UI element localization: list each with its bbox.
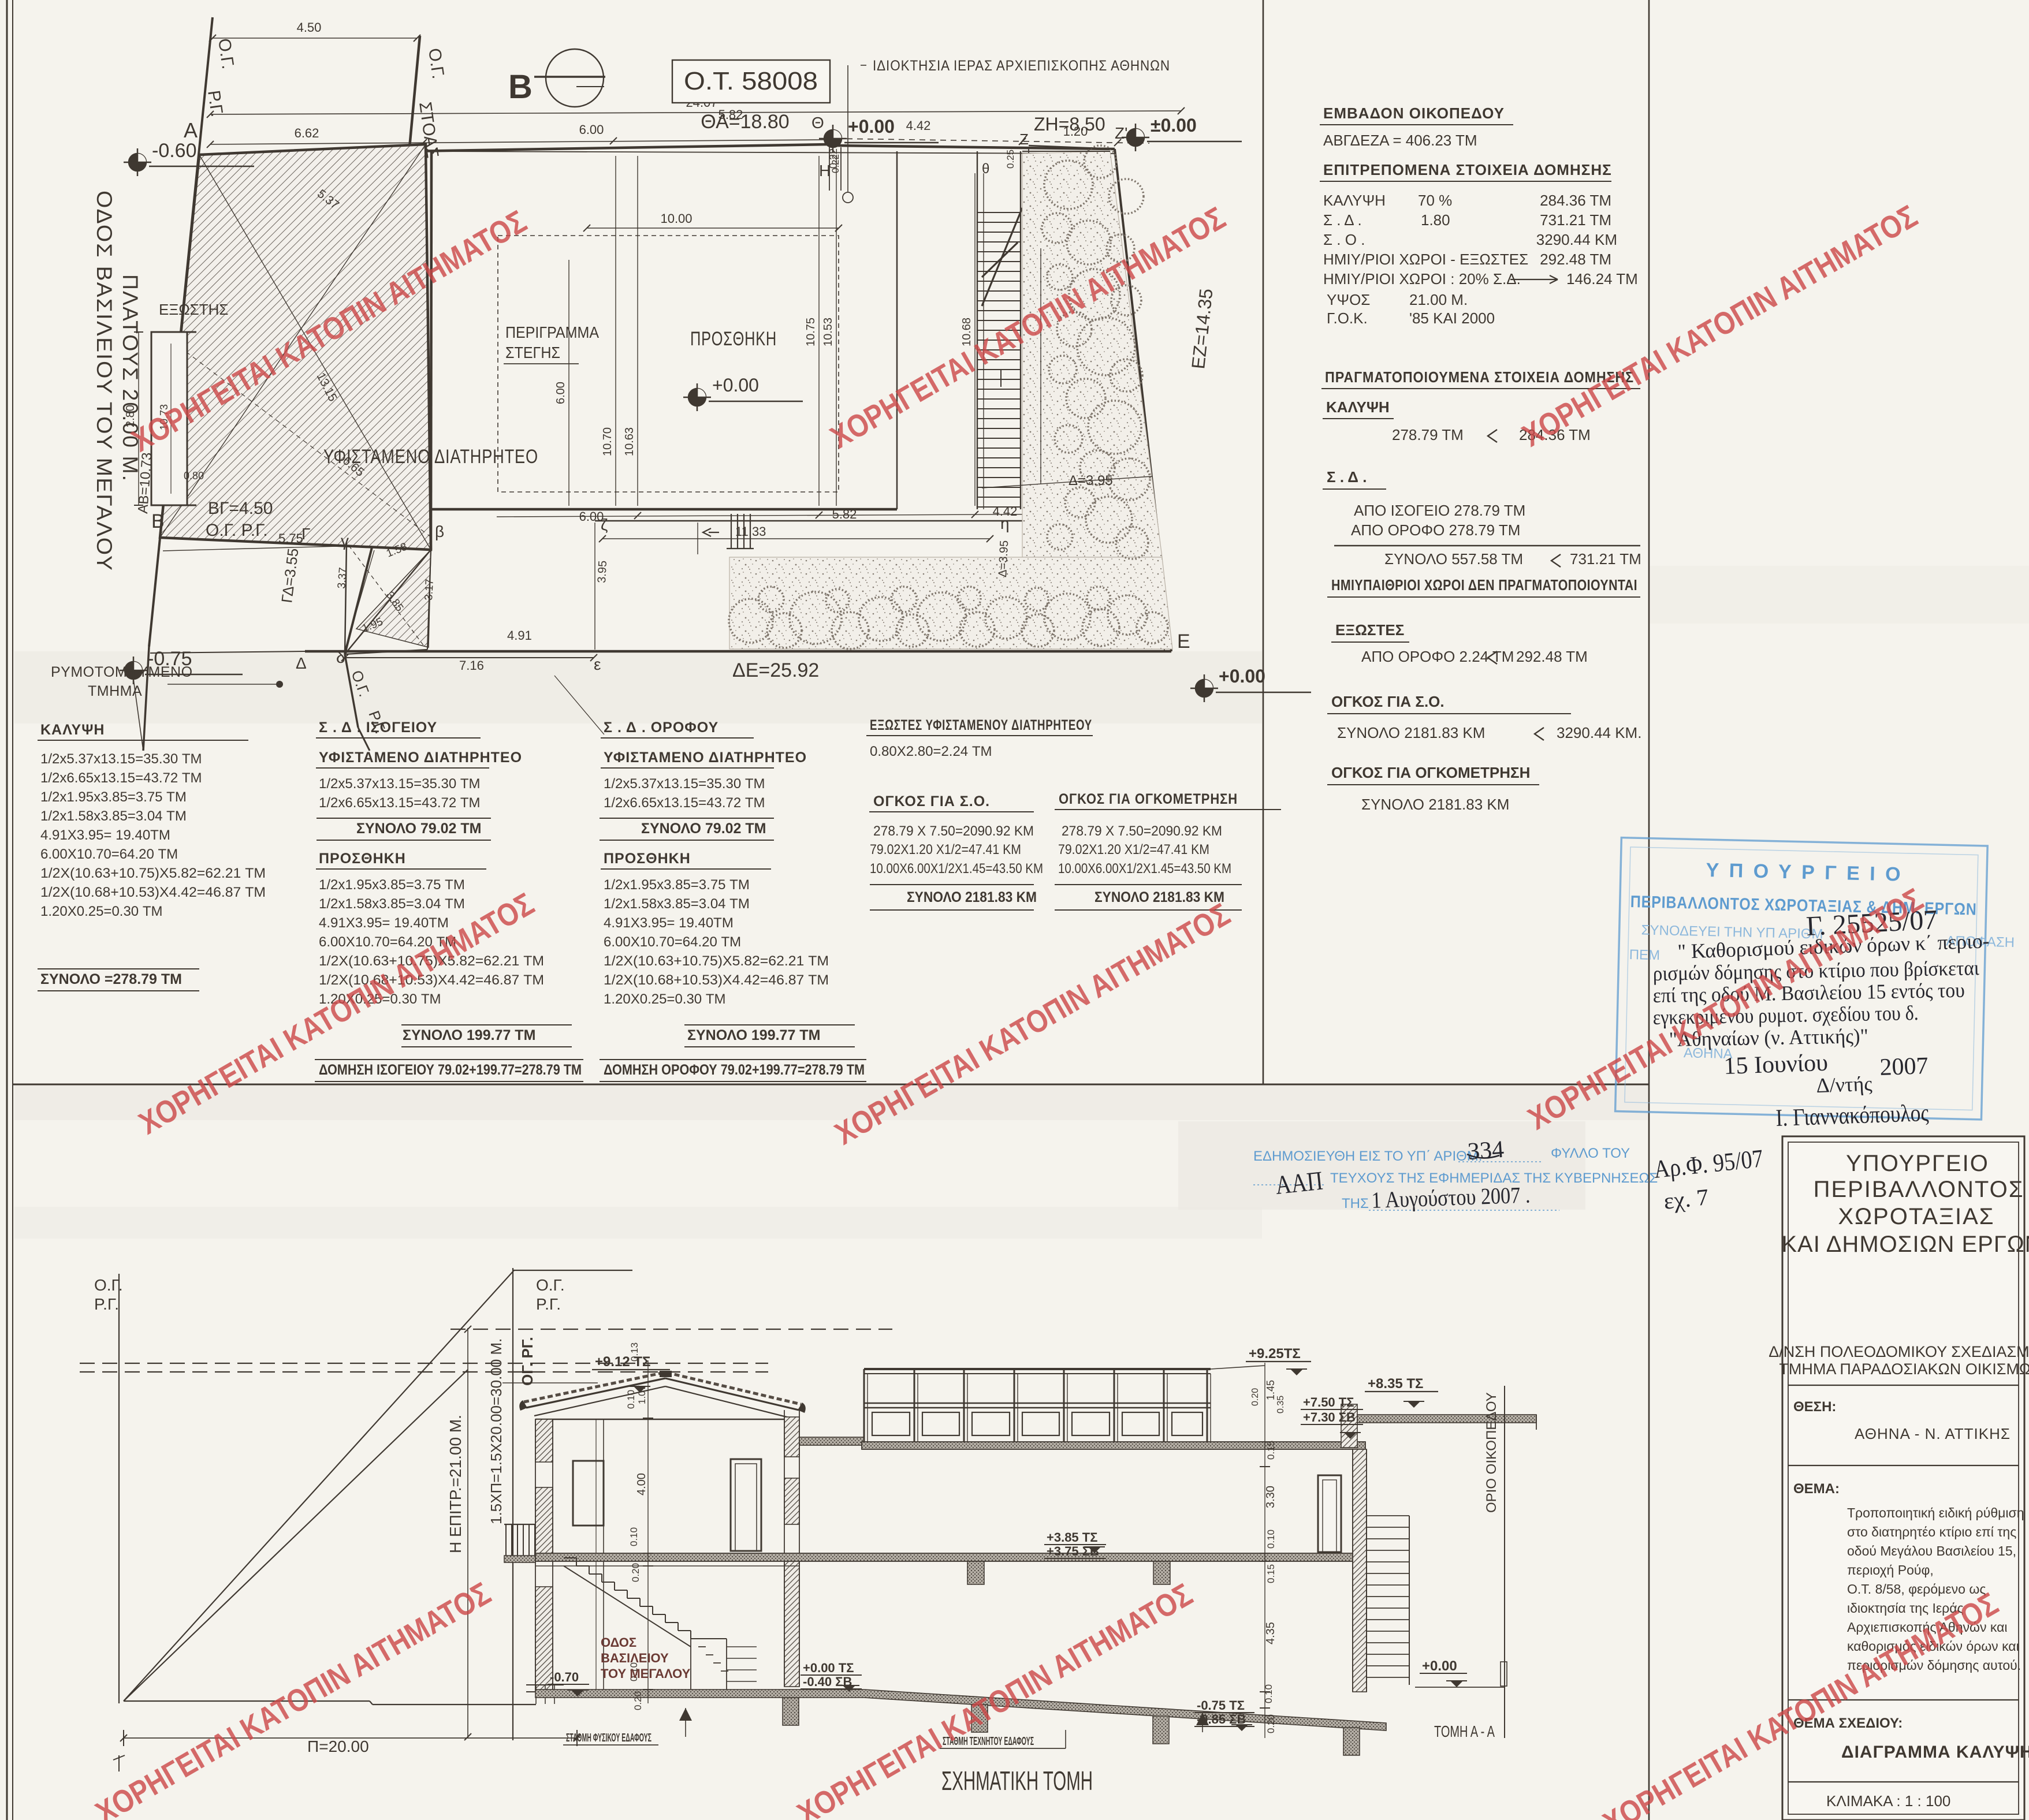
svg-text:ΠΕΡΙΓΡΑΜΜΑ: ΠΕΡΙΓΡΑΜΜΑ [505, 323, 599, 341]
svg-text:ΣΥΝΟΛΟ =278.79 ΤΜ: ΣΥΝΟΛΟ =278.79 ΤΜ [40, 971, 182, 987]
svg-text:1.20X0.25=0.30 ΤΜ: 1.20X0.25=0.30 ΤΜ [604, 991, 725, 1007]
svg-text:10.00: 10.00 [660, 211, 692, 226]
svg-text:10.53: 10.53 [822, 318, 835, 346]
svg-text:5.75: 5.75 [278, 531, 303, 546]
svg-text:10.00X6.00X1/2X1.45=43.50 ΚΜ: 10.00X6.00X1/2X1.45=43.50 ΚΜ [1058, 861, 1231, 877]
svg-text:6.00X10.70=64.20 ΤΜ: 6.00X10.70=64.20 ΤΜ [40, 846, 178, 862]
svg-text:0.80: 0.80 [184, 470, 204, 482]
svg-text:70 %: 70 % [1418, 192, 1452, 209]
svg-text:Ο.Τ. 8/58, φερόμενο ως: Ο.Τ. 8/58, φερόμενο ως [1847, 1582, 1986, 1597]
svg-text:Γ.Ο.Κ.: Γ.Ο.Κ. [1327, 309, 1368, 327]
svg-text:1.80: 1.80 [1421, 211, 1450, 229]
svg-text:η: η [1000, 514, 1010, 532]
svg-text:-0.75 ΤΣ: -0.75 ΤΣ [1197, 1698, 1245, 1713]
svg-text:+9.25ΤΣ: +9.25ΤΣ [1249, 1346, 1301, 1362]
svg-text:στο διατηρητέο κτίριο επί της: στο διατηρητέο κτίριο επί της [1847, 1524, 2016, 1539]
svg-text:4.00: 4.00 [635, 1473, 648, 1495]
svg-text:+0.00: +0.00 [848, 116, 895, 137]
svg-text:ΟΓΚΟΣ ΓΙΑ Σ.Ο.: ΟΓΚΟΣ ΓΙΑ Σ.Ο. [873, 793, 990, 810]
svg-text:6.00: 6.00 [554, 382, 567, 404]
svg-text:ΟΓΚΟΣ ΓΙΑ Σ.Ο.: ΟΓΚΟΣ ΓΙΑ Σ.Ο. [1331, 693, 1445, 710]
svg-text:Α: Α [184, 118, 198, 142]
svg-text:3.37: 3.37 [336, 567, 349, 590]
svg-text:+0.00 ΤΣ: +0.00 ΤΣ [803, 1661, 854, 1675]
svg-text:731.21 ΤΜ: 731.21 ΤΜ [1570, 550, 1641, 568]
svg-text:+7.30 ΣΒ: +7.30 ΣΒ [1303, 1410, 1356, 1424]
svg-text:ΠΡΟΣΘΗΚΗ: ΠΡΟΣΘΗΚΗ [604, 851, 691, 867]
svg-text:Υ Π Ο Υ Ρ Γ Ε Ι Ο: Υ Π Ο Υ Ρ Γ Ε Ι Ο [1706, 859, 1903, 886]
svg-text:γ: γ [341, 532, 349, 550]
svg-text:3.17: 3.17 [423, 579, 436, 601]
svg-text:ΚΑΛΥΨΗ: ΚΑΛΥΨΗ [1326, 398, 1390, 416]
svg-text:10.00X6.00X1/2X1.45=43.50 ΚΜ: 10.00X6.00X1/2X1.45=43.50 ΚΜ [870, 861, 1043, 877]
svg-text:+3.75 ΣΒ: +3.75 ΣΒ [1047, 1544, 1099, 1558]
svg-text:Ε: Ε [1177, 631, 1190, 652]
svg-text:Β: Β [151, 510, 165, 532]
svg-text:6.00: 6.00 [579, 122, 604, 137]
svg-text:1 Αυγούστου 2007 .: 1 Αυγούστου 2007 . [1371, 1181, 1531, 1213]
svg-text:278.79 X 7.50=2090.92 ΚΜ: 278.79 X 7.50=2090.92 ΚΜ [873, 823, 1034, 839]
svg-text:ΣΥΝΟΛΟ 79.02 ΤΜ: ΣΥΝΟΛΟ 79.02 ΤΜ [641, 821, 766, 837]
svg-text:0.15: 0.15 [1265, 1564, 1276, 1583]
svg-text:ΧΩΡΟΤΑΞΙΑΣ: ΧΩΡΟΤΑΞΙΑΣ [1838, 1204, 1994, 1229]
svg-text:ΚΑΙ ΔΗΜΟΣΙΩΝ ΕΡΓΩΝ: ΚΑΙ ΔΗΜΟΣΙΩΝ ΕΡΓΩΝ [1781, 1232, 2029, 1257]
svg-text:1/2X(10.63+10.75)X5.82=62.21: 1/2X(10.63+10.75)X5.82=62.21 ΤΜ [40, 866, 266, 881]
svg-text:ΑΘΗΝΑ - Ν. ΑΤΤΙΚΗΣ: ΑΘΗΝΑ - Ν. ΑΤΤΙΚΗΣ [1855, 1425, 2011, 1442]
svg-text:ΠΡΟΣΘΗΚΗ: ΠΡΟΣΘΗΚΗ [319, 851, 406, 867]
svg-text:0.22: 0.22 [830, 154, 841, 173]
svg-text:ΤΟΥ ΜΕΓΑΛΟΥ: ΤΟΥ ΜΕΓΑΛΟΥ [601, 1666, 691, 1681]
svg-text:Δ/ντής: Δ/ντής [1816, 1072, 1872, 1097]
svg-text:4.42: 4.42 [906, 118, 931, 133]
svg-text:6.00: 6.00 [579, 509, 604, 524]
svg-text:Δ=3.95: Δ=3.95 [1069, 473, 1113, 488]
svg-text:ΕΜΒΑΔΟΝ ΟΙΚΟΠΕΔΟΥ: ΕΜΒΑΔΟΝ ΟΙΚΟΠΕΔΟΥ [1323, 105, 1505, 122]
svg-text:6.00X10.70=64.20 ΤΜ: 6.00X10.70=64.20 ΤΜ [604, 934, 741, 950]
svg-text:Ρ.Γ.: Ρ.Γ. [536, 1295, 561, 1313]
svg-text:5.82: 5.82 [832, 507, 857, 521]
svg-text:Ρ.Γ.: Ρ.Γ. [204, 89, 226, 118]
svg-text:Π=20.00: Π=20.00 [307, 1737, 369, 1755]
svg-text:Σ . Δ . ΙΣΟΓΕΙΟΥ: Σ . Δ . ΙΣΟΓΕΙΟΥ [319, 719, 437, 736]
svg-text:θ: θ [982, 161, 989, 177]
svg-text:Ο.Γ.: Ο.Γ. [536, 1276, 565, 1294]
svg-text:ΘΕΣΗ:: ΘΕΣΗ: [1793, 1399, 1836, 1415]
svg-text:ΥΠΟΥΡΓΕΙΟ: ΥΠΟΥΡΓΕΙΟ [1846, 1151, 1989, 1176]
svg-text:6.62: 6.62 [295, 126, 319, 140]
svg-text:ζ: ζ [601, 516, 608, 534]
svg-text:ΣΥΝΟΛΟ 79.02 ΤΜ: ΣΥΝΟΛΟ 79.02 ΤΜ [356, 821, 482, 837]
svg-text:ΣΥΝΟΛΟ 2181.83 ΚΜ: ΣΥΝΟΛΟ 2181.83 ΚΜ [1361, 796, 1509, 813]
svg-text:ΥΦΙΣΤΑΜΕΝΟ ΔΙΑΤΗΡΗΤΕΟ: ΥΦΙΣΤΑΜΕΝΟ ΔΙΑΤΗΡΗΤΕΟ [319, 749, 522, 766]
svg-text:ΑΒΓΔΕΖΑ = 406.23 ΤΜ: ΑΒΓΔΕΖΑ = 406.23 ΤΜ [1323, 132, 1477, 149]
svg-text:ΚΑΛΥΨΗ: ΚΑΛΥΨΗ [40, 722, 105, 738]
svg-text:ΚΑΛΥΨΗ: ΚΑΛΥΨΗ [1323, 192, 1386, 209]
svg-text:ΕΞΩΣΤΕΣ ΥΦΙΣΤΑΜΕΝΟΥ ΔΙΑΤΗΡΗΤΕΟ: ΕΞΩΣΤΕΣ ΥΦΙΣΤΑΜΕΝΟΥ ΔΙΑΤΗΡΗΤΕΟΥ [870, 717, 1092, 733]
svg-text:ΟΡΙΟ ΟΙΚΟΠΕΔΟΥ: ΟΡΙΟ ΟΙΚΟΠΕΔΟΥ [1484, 1392, 1499, 1513]
svg-text:Β: Β [508, 68, 533, 106]
svg-text:0.10: 0.10 [1265, 1530, 1276, 1549]
svg-text:ΘΑ=18.80: ΘΑ=18.80 [701, 111, 789, 133]
svg-text:0.10: 0.10 [628, 1527, 639, 1546]
svg-text:ΤΜΗΜΑ ΠΑΡΑΔΟΣΙΑΚΩΝ ΟΙΚΙΣΜΩΝ: ΤΜΗΜΑ ΠΑΡΑΔΟΣΙΑΚΩΝ ΟΙΚΙΣΜΩΝ [1779, 1360, 2029, 1378]
svg-text:0.20: 0.20 [1250, 1388, 1260, 1406]
svg-text:1/2x6.65x13.15=43.72 ΤΜ: 1/2x6.65x13.15=43.72 ΤΜ [604, 795, 765, 811]
svg-text:Ο.Τ. 58008: Ο.Τ. 58008 [684, 67, 818, 95]
svg-text:1/2x1.95x3.85=3.75 ΤΜ: 1/2x1.95x3.85=3.75 ΤΜ [604, 877, 750, 893]
svg-text:Τροποποιητική ειδική ρύθμιση: Τροποποιητική ειδική ρύθμιση [1847, 1505, 2024, 1520]
svg-text:Σ . Δ .: Σ . Δ . [1323, 211, 1362, 229]
svg-text:-0.70: -0.70 [550, 1670, 579, 1684]
svg-text:ΙΔΙΟΚΤΗΣΙΑ ΙΕΡΑΣ ΑΡΧΙΕΠΙΣΚΟΠΗΣ: ΙΔΙΟΚΤΗΣΙΑ ΙΕΡΑΣ ΑΡΧΙΕΠΙΣΚΟΠΗΣ ΑΘΗΝΩΝ [873, 58, 1170, 74]
svg-text:0.25: 0.25 [1005, 150, 1016, 169]
svg-text:+0.00: +0.00 [1422, 1658, 1457, 1674]
svg-text:278.79 ΤΜ: 278.79 ΤΜ [1392, 426, 1464, 443]
svg-text:ΖΗ=8.50: ΖΗ=8.50 [1034, 114, 1105, 135]
svg-text:Ζ: Ζ [1019, 130, 1029, 148]
svg-text:3290.44 ΚΜ.: 3290.44 ΚΜ. [1557, 724, 1641, 741]
svg-text:4.35: 4.35 [1264, 1622, 1277, 1644]
svg-text:ΣΥΝΟΛΟ 2181.83 ΚΜ: ΣΥΝΟΛΟ 2181.83 ΚΜ [907, 889, 1037, 905]
svg-text:4.91X3.95= 19.40ΤΜ: 4.91X3.95= 19.40ΤΜ [604, 915, 734, 931]
svg-text:ΗΜΙΥ/ΡΙΟΙ ΧΩΡΟΙ : 20% Σ.Δ.: ΗΜΙΥ/ΡΙΟΙ ΧΩΡΟΙ : 20% Σ.Δ. [1323, 270, 1521, 288]
svg-text:οδού Μεγάλου Βασιλείου 15,: οδού Μεγάλου Βασιλείου 15, [1847, 1543, 2016, 1558]
svg-text:ΣΧΗΜΑΤΙΚΗ ΤΟΜΗ: ΣΧΗΜΑΤΙΚΗ ΤΟΜΗ [941, 1766, 1093, 1796]
svg-text:'85 ΚΑΙ 2000: '85 ΚΑΙ 2000 [1409, 309, 1495, 327]
svg-text:1.20X0.25=0.30 ΤΜ: 1.20X0.25=0.30 ΤΜ [40, 904, 162, 919]
svg-text:±0.00: ±0.00 [1151, 115, 1197, 136]
svg-text:1/2x1.58x3.85=3.04 ΤΜ: 1/2x1.58x3.85=3.04 ΤΜ [319, 896, 465, 912]
svg-text:β: β [435, 523, 444, 540]
svg-text:ΒΑΣΙΛΕΙΟΥ: ΒΑΣΙΛΕΙΟΥ [601, 1651, 669, 1665]
svg-text:+0.00: +0.00 [712, 375, 759, 396]
svg-text:0.15: 0.15 [1265, 1441, 1276, 1460]
svg-text:ΤΟΜΗ Α - Α: ΤΟΜΗ Α - Α [1434, 1722, 1495, 1740]
svg-text:ΣΥΝΟΛΟ 2181.83 ΚΜ: ΣΥΝΟΛΟ 2181.83 ΚΜ [1337, 724, 1485, 741]
svg-text:Η ΕΠΙΤΡ.=21.00 Μ.: Η ΕΠΙΤΡ.=21.00 Μ. [446, 1415, 464, 1553]
svg-text:ΔΕ=25.92: ΔΕ=25.92 [732, 659, 819, 681]
svg-text:ΔΙΑΓΡΑΜΜΑ ΚΑΛΥΨΗΣ: ΔΙΑΓΡΑΜΜΑ ΚΑΛΥΨΗΣ [1841, 1743, 2029, 1762]
svg-text:ΣΥΝΟΛΟ 199.77 ΤΜ: ΣΥΝΟΛΟ 199.77 ΤΜ [687, 1027, 820, 1043]
svg-text:ε: ε [594, 655, 601, 673]
svg-text:ΠΕΜ: ΠΕΜ [1629, 947, 1660, 963]
svg-text:Δ: Δ [296, 654, 307, 672]
svg-text:1.07: 1.07 [636, 1385, 647, 1404]
svg-text:79.02X1.20 X1/2=47.41 ΚΜ: 79.02X1.20 X1/2=47.41 ΚΜ [1058, 842, 1209, 857]
svg-text:ΣΥΝΟΛΟ 557.58 ΤΜ: ΣΥΝΟΛΟ 557.58 ΤΜ [1384, 550, 1523, 568]
svg-text:Γ: Γ [301, 525, 310, 543]
svg-text:ΥΨΟΣ: ΥΨΟΣ [1327, 291, 1370, 308]
svg-text:146.24 ΤΜ: 146.24 ΤΜ [1566, 270, 1638, 288]
svg-text:+7.50 ΤΣ: +7.50 ΤΣ [1303, 1395, 1354, 1409]
svg-text:0.10: 0.10 [1263, 1684, 1274, 1703]
svg-text:10.70: 10.70 [601, 427, 614, 456]
svg-text:ΣΥΝΟΛΟ 199.77 ΤΜ: ΣΥΝΟΛΟ 199.77 ΤΜ [403, 1027, 535, 1043]
svg-text:ΟΔΟΣ ΒΑΣΙΛΕΙΟΥ ΤΟΥ ΜΕΓΑΛΟΥ: ΟΔΟΣ ΒΑΣΙΛΕΙΟΥ ΤΟΥ ΜΕΓΑΛΟΥ [92, 191, 116, 572]
svg-text:0.80X2.80=2.24 ΤΜ: 0.80X2.80=2.24 ΤΜ [870, 744, 992, 759]
svg-text:-0.60: -0.60 [152, 140, 197, 162]
svg-text:ΑΠΟ ΟΡΟΦΟ 278.79 ΤΜ: ΑΠΟ ΟΡΟΦΟ 278.79 ΤΜ [1351, 521, 1520, 539]
svg-text:1/2x1.58x3.85=3.04 ΤΜ: 1/2x1.58x3.85=3.04 ΤΜ [604, 896, 750, 912]
svg-text:+0.00: +0.00 [1219, 666, 1265, 687]
svg-text:10.63: 10.63 [623, 427, 636, 456]
svg-text:ΕΔΗΜΟΣΙΕΥΘΗ ΕΙΣ ΤΟ ΥΠ΄ ΑΡΙΘ: ΕΔΗΜΟΣΙΕΥΘΗ ΕΙΣ ΤΟ ΥΠ΄ ΑΡΙΘΜ. [1253, 1148, 1482, 1164]
svg-text:ΗΜΙΥ/ΡΙΟΙ ΧΩΡΟΙ - ΕΞΩΣΤΕΣ: ΗΜΙΥ/ΡΙΟΙ ΧΩΡΟΙ - ΕΞΩΣΤΕΣ [1323, 251, 1528, 268]
svg-text:ΟΓ. ΡΓ.: ΟΓ. ΡΓ. [519, 1337, 536, 1386]
svg-text:4.91X3.95= 19.40ΤΜ: 4.91X3.95= 19.40ΤΜ [40, 827, 170, 843]
svg-text:21.00 Μ.: 21.00 Μ. [1409, 291, 1468, 308]
svg-text:1/2x5.37x13.15=35.30 ΤΜ: 1/2x5.37x13.15=35.30 ΤΜ [319, 776, 481, 792]
svg-text:ΟΓΚΟΣ ΓΙΑ ΟΓΚΟΜΕΤΡΗΣΗ: ΟΓΚΟΣ ΓΙΑ ΟΓΚΟΜΕΤΡΗΣΗ [1059, 791, 1238, 807]
svg-text:284.36 ΤΜ: 284.36 ΤΜ [1540, 192, 1611, 209]
svg-text:εχ. 7: εχ. 7 [1662, 1184, 1710, 1214]
svg-text:1/2x6.65x13.15=43.72 ΤΜ: 1/2x6.65x13.15=43.72 ΤΜ [40, 770, 202, 786]
svg-text:ΠΡΟΣΘΗΚΗ: ΠΡΟΣΘΗΚΗ [690, 328, 777, 350]
svg-text:3290.44 ΚΜ: 3290.44 ΚΜ [1536, 231, 1617, 248]
svg-text:Ο.Γ.: Ο.Γ. [94, 1276, 123, 1294]
svg-text:0.13: 0.13 [629, 1342, 640, 1362]
svg-text:ΟΔΟΣ: ΟΔΟΣ [601, 1635, 636, 1650]
svg-text:4.50: 4.50 [297, 20, 322, 35]
svg-text:7.16: 7.16 [459, 658, 484, 673]
svg-text:1/2x5.37x13.15=35.30 ΤΜ: 1/2x5.37x13.15=35.30 ΤΜ [604, 776, 765, 792]
svg-text:0.20: 0.20 [630, 1563, 641, 1582]
svg-text:334: 334 [1466, 1136, 1505, 1165]
svg-text:ΕΠΙΤΡΕΠΟΜΕΝΑ ΣΤΟΙΧΕΙΑ ΔΟΜΗΣ: ΕΠΙΤΡΕΠΟΜΕΝΑ ΣΤΟΙΧΕΙΑ ΔΟΜΗΣΗΣ [1323, 161, 1612, 178]
svg-text:περιοχή Ρούφ,: περιοχή Ρούφ, [1847, 1562, 1934, 1577]
svg-text:Ο.Γ. Ρ.Γ.: Ο.Γ. Ρ.Γ. [206, 521, 268, 540]
svg-text:ΣΤΕΓΗΣ: ΣΤΕΓΗΣ [505, 344, 560, 361]
svg-text:Δ/ΝΣΗ ΠΟΛΕΟΔΟΜΙΚΟΥ ΣΧΕΔΙΑΣΜΟΥ: Δ/ΝΣΗ ΠΟΛΕΟΔΟΜΙΚΟΥ ΣΧΕΔΙΑΣΜΟΥ [1769, 1343, 2029, 1360]
svg-text:ΥΦΙΣΤΑΜΕΝΟ ΔΙΑΤΗΡΗΤΕΟ: ΥΦΙΣΤΑΜΕΝΟ ΔΙΑΤΗΡΗΤΕΟ [604, 749, 807, 766]
svg-text:1/2x1.95x3.85=3.75 ΤΜ: 1/2x1.95x3.85=3.75 ΤΜ [40, 789, 187, 805]
svg-text:1/2x6.65x13.15=43.72 ΤΜ: 1/2x6.65x13.15=43.72 ΤΜ [319, 795, 481, 811]
svg-text:ΒΓ=4.50: ΒΓ=4.50 [208, 499, 273, 518]
svg-text:1.5ΧΠ=1.5Χ20.00=30.00 Μ.: 1.5ΧΠ=1.5Χ20.00=30.00 Μ. [487, 1338, 505, 1524]
svg-text:0.10: 0.10 [626, 1390, 636, 1409]
svg-text:ΕΞΩΣΤΗΣ: ΕΞΩΣΤΗΣ [159, 301, 228, 318]
svg-text:ΔΟΜΗΣΗ ΟΡΟΦΟΥ 79.02+199.77=278: ΔΟΜΗΣΗ ΟΡΟΦΟΥ 79.02+199.77=278.79 ΤΜ [604, 1062, 865, 1078]
svg-text:ΗΜΙΥΠΑΙΘΡΙΟΙ ΧΩΡΟΙ ΔΕΝ ΠΡΑΓΜ: ΗΜΙΥΠΑΙΘΡΙΟΙ ΧΩΡΟΙ ΔΕΝ ΠΡΑΓΜΑΤΟΠΟΙΟΥΝΤΑΙ [1331, 576, 1637, 594]
svg-text:Σ . Δ . ΟΡΟΦΟΥ: Σ . Δ . ΟΡΟΦΟΥ [604, 719, 718, 736]
svg-text:ΦΥΛΛΟ ΤΟΥ: ΦΥΛΛΟ ΤΟΥ [1551, 1146, 1630, 1161]
svg-text:ΑΑΠ: ΑΑΠ [1274, 1166, 1324, 1200]
svg-text:ΚΛΙΜΑΚΑ : 1 : 100: ΚΛΙΜΑΚΑ : 1 : 100 [1826, 1792, 1950, 1810]
svg-text:1.45: 1.45 [1265, 1380, 1276, 1400]
svg-text:Ι. Γιαννακόπουλος: Ι. Γιαννακόπουλος [1775, 1100, 1930, 1132]
svg-text:1/2X(10.63+10.75)X5.82=62.21: 1/2X(10.63+10.75)X5.82=62.21 ΤΜ [604, 953, 829, 969]
svg-text:4.91: 4.91 [507, 628, 532, 643]
svg-text:10.75: 10.75 [805, 318, 817, 346]
svg-text:292.48 ΤΜ: 292.48 ΤΜ [1540, 251, 1611, 268]
svg-text:+9.12 ΤΣ: +9.12 ΤΣ [595, 1354, 650, 1370]
svg-text:292.48 ΤΜ: 292.48 ΤΜ [1516, 648, 1588, 665]
svg-text:1/2x1.95x3.85=3.75 ΤΜ: 1/2x1.95x3.85=3.75 ΤΜ [319, 877, 465, 893]
svg-text:1/2X(10.68+10.53)X4.42=46.87: 1/2X(10.68+10.53)X4.42=46.87 ΤΜ [40, 885, 266, 900]
svg-text:3.95: 3.95 [595, 560, 609, 583]
svg-text:4.91X3.95= 19.40ΤΜ: 4.91X3.95= 19.40ΤΜ [319, 915, 449, 931]
svg-text:+8.35 ΤΣ: +8.35 ΤΣ [1368, 1376, 1423, 1392]
svg-text:Ρ.Γ.: Ρ.Γ. [94, 1295, 119, 1313]
svg-text:0.35: 0.35 [1276, 1396, 1286, 1414]
svg-text:79.02X1.20 X1/2=47.41 ΚΜ: 79.02X1.20 X1/2=47.41 ΚΜ [870, 842, 1021, 857]
svg-text:1/2X(10.68+10.53)X4.42=46.87: 1/2X(10.68+10.53)X4.42=46.87 ΤΜ [604, 972, 829, 988]
svg-text:Σ . Ο .: Σ . Ο . [1323, 231, 1365, 248]
svg-text:ΤΗΣ: ΤΗΣ [1342, 1196, 1369, 1211]
svg-text:1/2x1.58x3.85=3.04 ΤΜ: 1/2x1.58x3.85=3.04 ΤΜ [40, 808, 187, 824]
svg-text:5.82: 5.82 [718, 107, 743, 122]
svg-text:0.20: 0.20 [632, 1691, 643, 1710]
svg-text:ΠΕΡΙΒΑΛΛΟΝΤΟΣ: ΠΕΡΙΒΑΛΛΟΝΤΟΣ [1814, 1177, 2024, 1202]
svg-text:+3.85 ΤΣ: +3.85 ΤΣ [1047, 1530, 1097, 1545]
svg-text:278.79 X 7.50=2090.92 ΚΜ: 278.79 X 7.50=2090.92 ΚΜ [1062, 823, 1222, 839]
svg-text:0.20: 0.20 [1265, 1714, 1276, 1733]
svg-text:1/2x5.37x13.15=35.30 ΤΜ: 1/2x5.37x13.15=35.30 ΤΜ [40, 751, 202, 767]
svg-text:Δ=3.95: Δ=3.95 [996, 540, 1011, 577]
svg-text:ΣΤΑΘΜΗ ΦΥΣΙΚΟΥ ΕΔΑΦΟΥΣ: ΣΤΑΘΜΗ ΦΥΣΙΚΟΥ ΕΔΑΦΟΥΣ [566, 1732, 651, 1744]
svg-text:ΑΠΟ ΙΣΟΓΕΙΟ 278.79 ΤΜ: ΑΠΟ ΙΣΟΓΕΙΟ 278.79 ΤΜ [1354, 502, 1525, 519]
svg-text:731.21 ΤΜ: 731.21 ΤΜ [1540, 211, 1611, 229]
svg-text:-0.75: -0.75 [147, 648, 192, 670]
svg-text:ΟΓΚΟΣ ΓΙΑ ΟΓΚΟΜΕΤΡΗΣΗ: ΟΓΚΟΣ ΓΙΑ ΟΓΚΟΜΕΤΡΗΣΗ [1331, 764, 1530, 781]
svg-text:15 Ιουνίου: 15 Ιουνίου [1723, 1050, 1829, 1080]
svg-text:3.30: 3.30 [1264, 1486, 1277, 1508]
svg-text:ΔΟΜΗΣΗ ΙΣΟΓΕΙΟΥ 79.02+199.77=2: ΔΟΜΗΣΗ ΙΣΟΓΕΙΟΥ 79.02+199.77=278.79 ΤΜ [319, 1062, 582, 1078]
svg-text:Θ: Θ [811, 114, 824, 132]
svg-text:Ζ': Ζ' [1115, 124, 1127, 142]
svg-text:ΕΞΩΣΤΕΣ: ΕΞΩΣΤΕΣ [1335, 621, 1404, 639]
svg-text:Σ . Δ .: Σ . Δ . [1327, 468, 1367, 486]
svg-text:2007: 2007 [1879, 1053, 1929, 1081]
svg-text:ΑΠΟ ΟΡΟΦΟ 2.24 ΤΜ: ΑΠΟ ΟΡΟΦΟ 2.24 ΤΜ [1361, 648, 1514, 665]
svg-text:ΘΕΜΑ:: ΘΕΜΑ: [1793, 1481, 1840, 1497]
